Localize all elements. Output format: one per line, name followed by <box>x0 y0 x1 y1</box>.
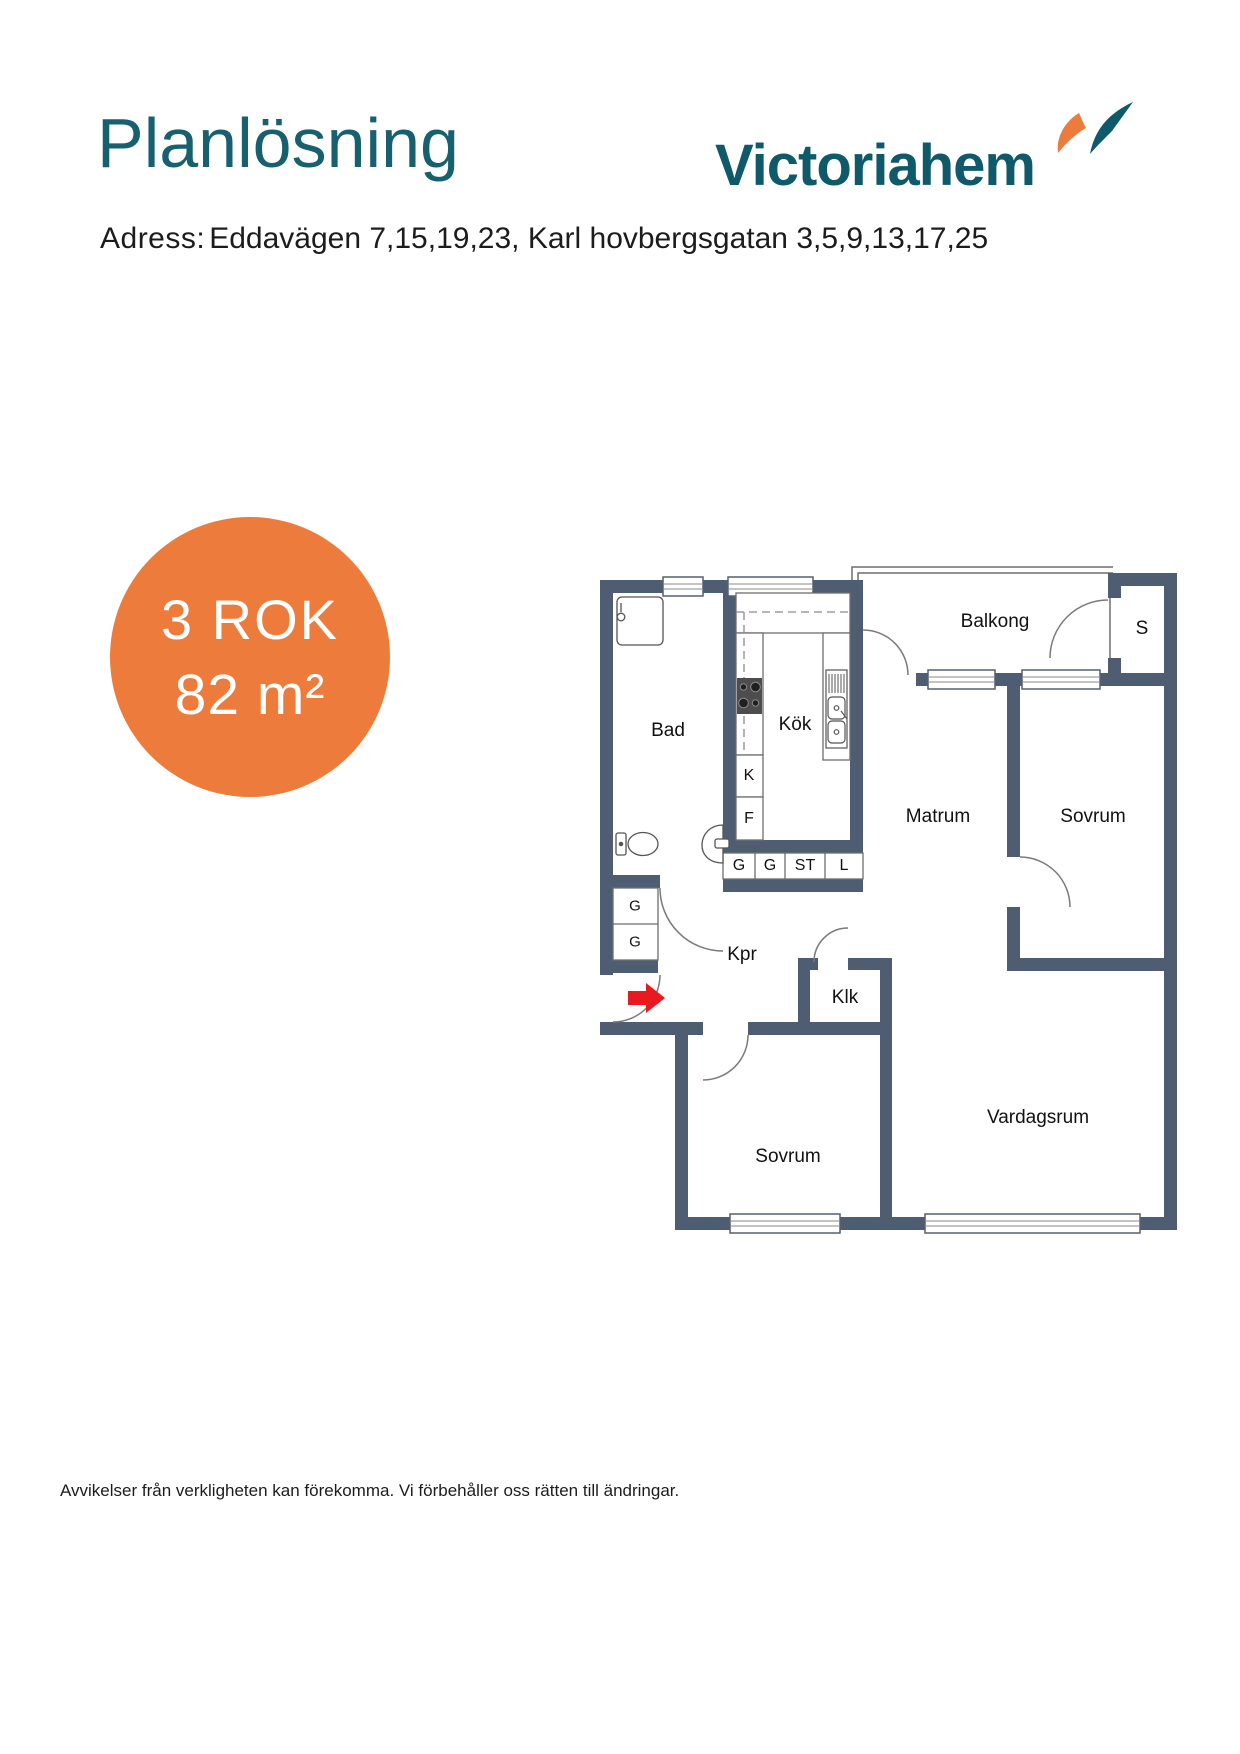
page: Planlösning Victoriahem Adress:Eddavägen… <box>0 0 1240 1754</box>
entry-arrow-icon <box>628 983 665 1013</box>
room-label-sovrum: Sovrum <box>1060 806 1125 828</box>
stove-icon <box>737 678 762 714</box>
room-label-k-k: Kök <box>779 714 812 736</box>
room-label-klk: Klk <box>832 987 858 1009</box>
shower-icon <box>617 597 663 645</box>
room-label-s: S <box>1136 618 1149 640</box>
room-label-matrum: Matrum <box>906 806 970 828</box>
room-label-kpr: Kpr <box>727 944 757 966</box>
footer-disclaimer: Avvikelser från verkligheten kan förekom… <box>60 1481 679 1501</box>
room-label-bad: Bad <box>651 720 685 742</box>
room-label-l: L <box>840 857 849 875</box>
room-label-vardagsrum: Vardagsrum <box>987 1107 1089 1129</box>
room-label-g: G <box>764 857 776 875</box>
room-label-f: F <box>744 810 754 828</box>
room-label-k: K <box>744 767 755 785</box>
toilet-icon <box>616 833 658 856</box>
room-label-g: G <box>629 934 641 951</box>
room-label-st: ST <box>795 857 815 875</box>
kitchen-sink-icon <box>826 670 847 748</box>
room-label-balkong: Balkong <box>961 611 1030 633</box>
room-label-g: G <box>733 857 745 875</box>
room-label-g: G <box>629 898 641 915</box>
room-label-sovrum: Sovrum <box>755 1146 820 1168</box>
